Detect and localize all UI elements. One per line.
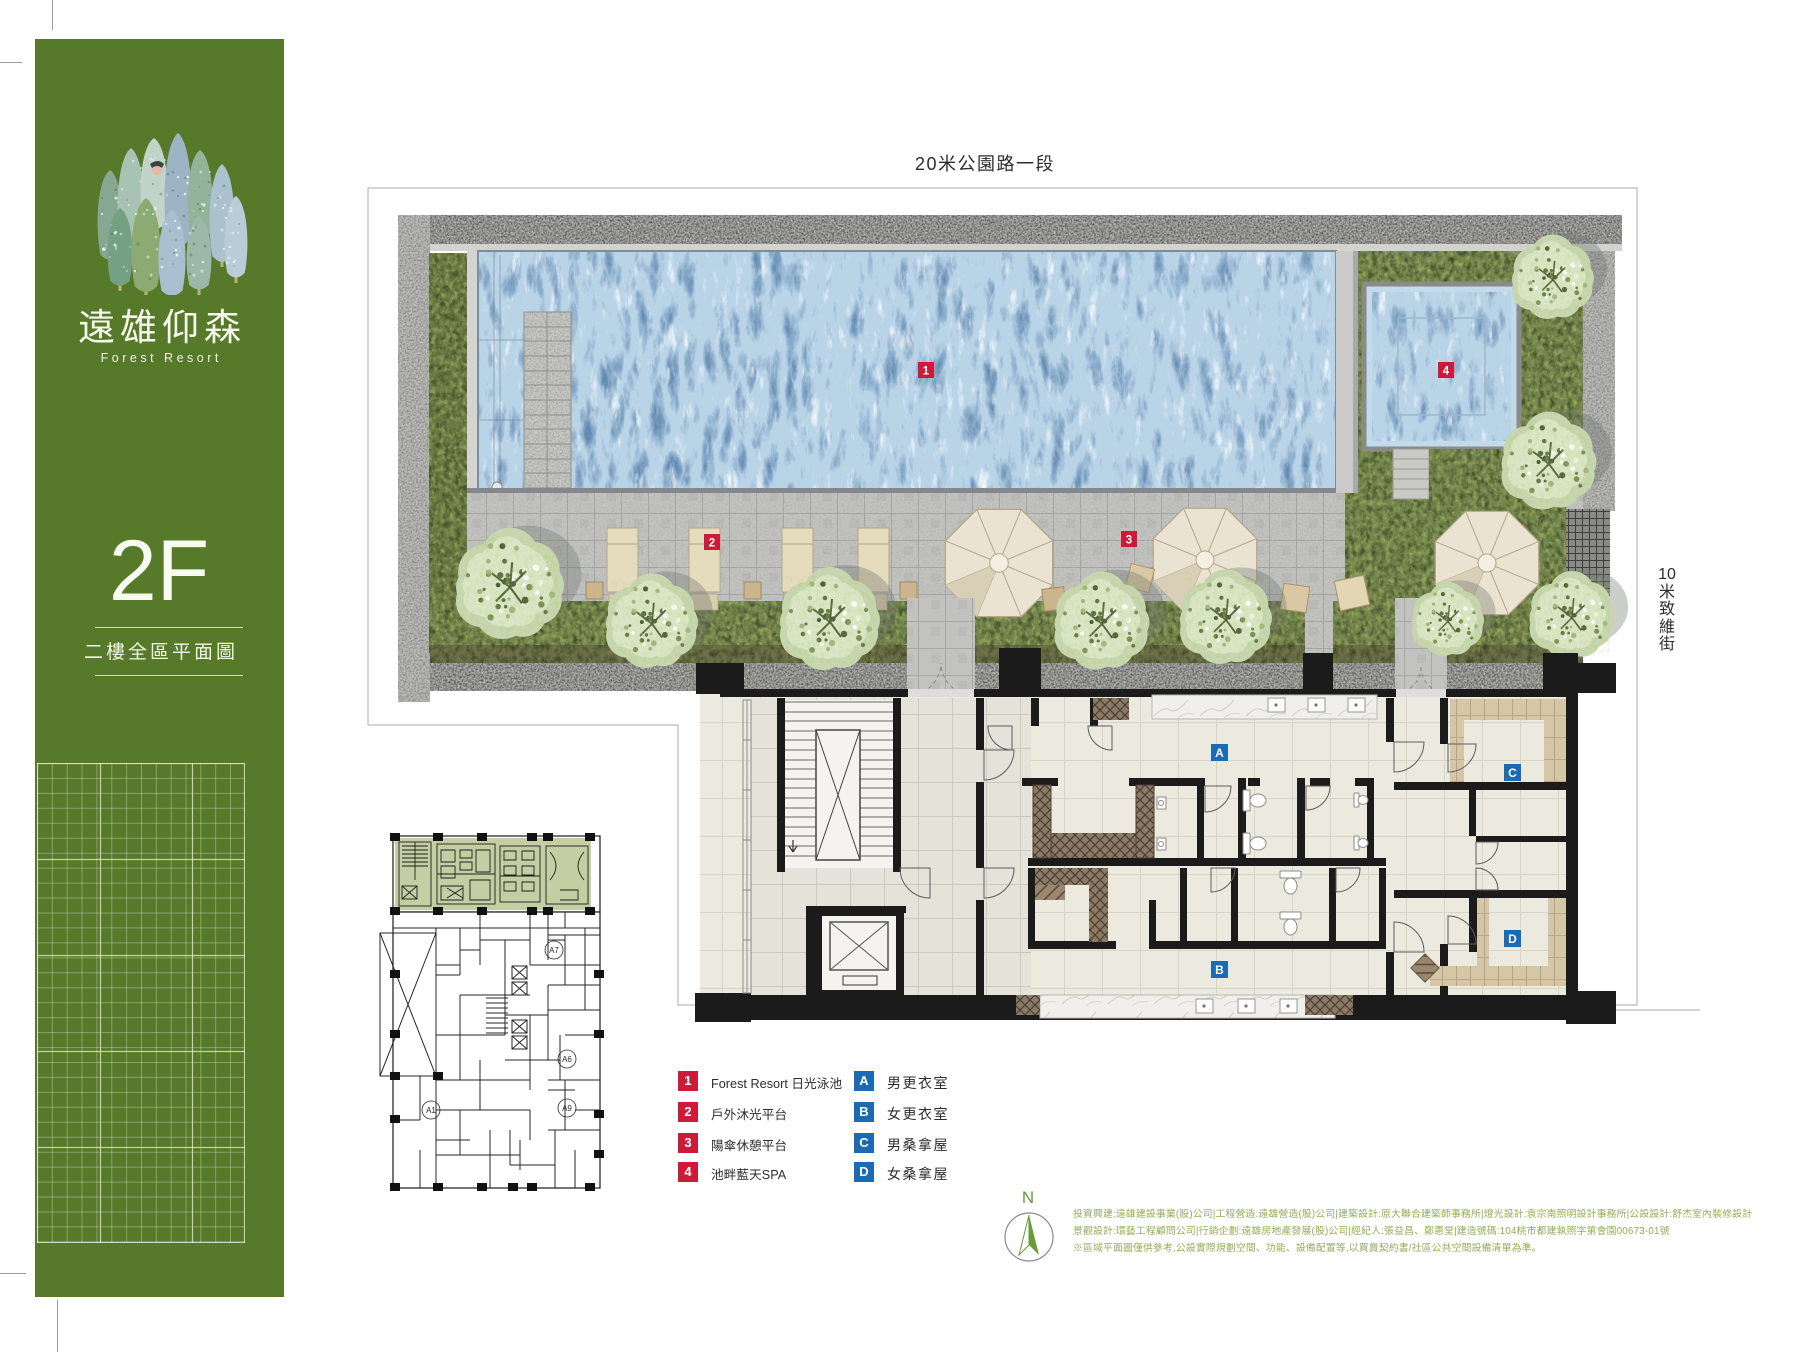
svg-text:1: 1	[923, 366, 930, 378]
svg-text:A: A	[1215, 746, 1224, 760]
svg-text:B: B	[1215, 963, 1224, 977]
svg-text:A7: A7	[549, 946, 559, 955]
svg-text:3: 3	[1126, 535, 1132, 547]
svg-text:C: C	[1508, 766, 1517, 780]
svg-text:A9: A9	[562, 1104, 572, 1113]
svg-text:N: N	[1022, 1188, 1034, 1207]
svg-text:D: D	[1508, 932, 1517, 946]
svg-text:2: 2	[709, 538, 715, 550]
svg-text:A6: A6	[562, 1055, 572, 1064]
svg-text:4: 4	[1443, 366, 1450, 378]
svg-text:A1: A1	[426, 1106, 436, 1115]
svg-text:2F: 2F	[109, 524, 209, 616]
